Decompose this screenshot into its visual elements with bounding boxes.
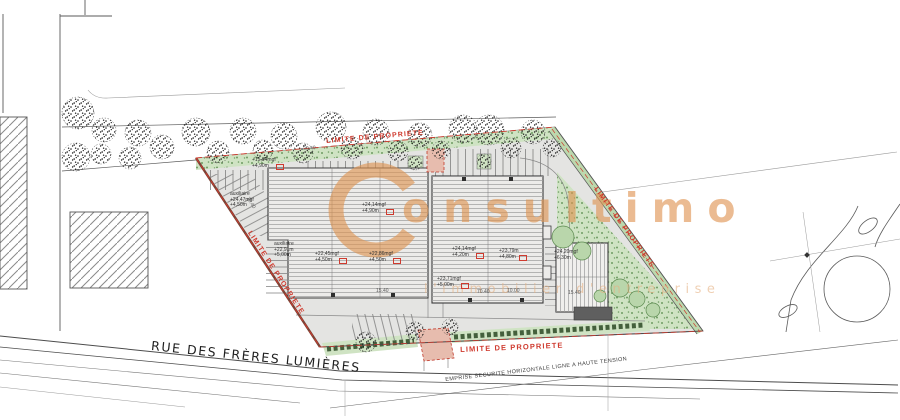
shelter: [574, 307, 612, 320]
plan-linework: [0, 0, 900, 420]
dimension-label: 70.40: [477, 289, 490, 295]
dimension-label: 15.40: [376, 288, 389, 294]
level-annotation: +22,86mgf+4,50m: [369, 252, 393, 263]
level-annotation: +24,14mgf+4,90m: [362, 203, 386, 214]
level-annotation: +22,45mgf+4,50m: [315, 252, 339, 263]
dimension-label: 10.00: [507, 288, 520, 294]
context-buildings: [0, 117, 148, 289]
site-plan: onsultimo l'immobilier d'entreprise RUE …: [0, 0, 900, 420]
dimension-label: 30.40: [303, 145, 316, 152]
dimension-label: 15.40: [568, 290, 581, 296]
level-annotation: +23,71mgf+5,00m: [437, 277, 461, 288]
level-annotation: +15,94mgf+4,90m: [252, 158, 276, 169]
level-annotation: +23,79m+4,80m: [499, 249, 519, 260]
level-annotation: +24,14mgf+4,20m: [452, 247, 476, 258]
level-annotation: auxiliaire+22,91m+5,00m: [274, 242, 294, 259]
level-annotation: +24,20mgf+6,30m: [554, 250, 578, 261]
roundabout: [770, 204, 900, 332]
